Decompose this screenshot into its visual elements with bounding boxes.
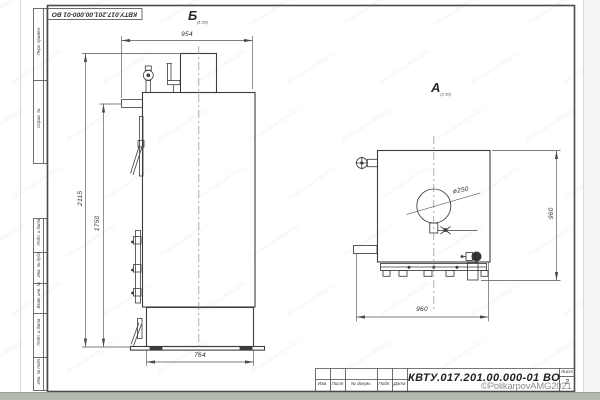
bottom-edge-band <box>0 392 600 400</box>
side-columns <box>34 9 143 391</box>
dim-rear-height: 960 <box>549 193 556 233</box>
view-b-scale: (1:10) <box>197 20 207 25</box>
titleblock-col-izm: Изм. <box>315 382 330 387</box>
titleblock-col-podp: Подп. <box>377 382 392 387</box>
side-label-perv-primen: Перв. примен. <box>37 19 41 63</box>
designation-rotated: КВТУ.017.201.00.000-01 ВО <box>47 10 142 17</box>
dim-top-width: 954 <box>167 32 207 39</box>
view-b-dimensions <box>82 36 254 366</box>
view-b-label: Б(1:10) <box>188 9 208 25</box>
dim-base-width: 764 <box>180 353 220 360</box>
view-a-label: А(1:10) <box>431 81 451 97</box>
view-a-scale: (1:10) <box>440 92 450 97</box>
side-label-podp-data-2: Подп. и дата <box>37 310 41 354</box>
dim-body-height: 1750 <box>95 203 102 243</box>
titleblock-col-list: Лист <box>330 382 345 387</box>
view-b-arrowheads <box>84 39 254 364</box>
frame-border <box>48 6 575 392</box>
side-label-sprav-no: Справ. № <box>37 96 41 140</box>
view-a-dimensions <box>357 151 561 322</box>
watermark-credit: ©PolikarpovAMG2021 <box>481 381 572 392</box>
titleblock-sheet-label: Лист <box>559 370 575 375</box>
titleblock-col-docnum: № докум. <box>345 382 377 387</box>
drawing-sheet: ©PolikarpovAMG2021©PolikarpovAMG2021©Pol… <box>0 0 600 400</box>
dim-total-height: 2115 <box>78 178 85 218</box>
sheet-right-margin <box>584 0 600 393</box>
drawing-canvas <box>0 0 600 400</box>
view-b-body <box>131 54 265 351</box>
dim-rear-width: 960 <box>402 307 442 314</box>
view-a-arrowheads <box>357 151 559 319</box>
side-label-inv-podl: Инв. № подл. <box>37 349 41 393</box>
titleblock-col-data: Дата <box>392 382 407 387</box>
